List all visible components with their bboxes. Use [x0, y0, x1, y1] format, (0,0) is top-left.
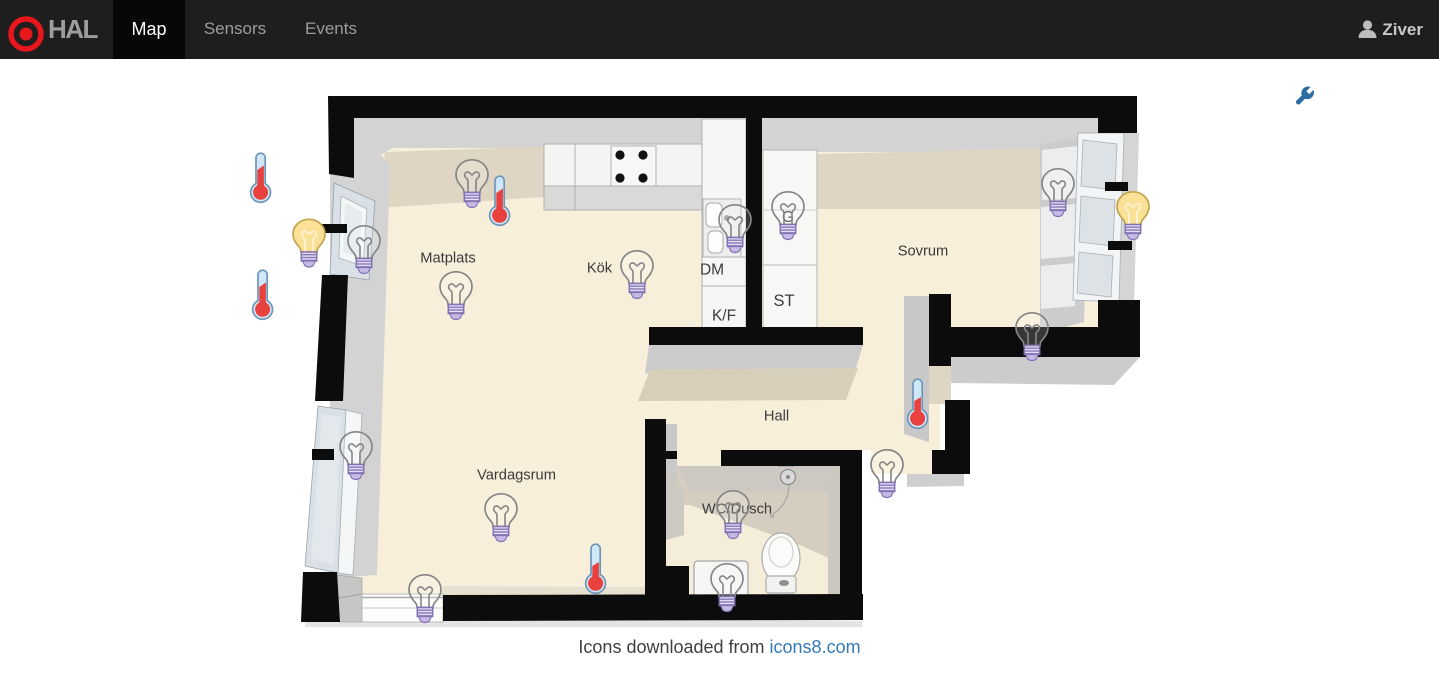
svg-text:Hall: Hall	[764, 409, 789, 425]
svg-text:Kök: Kök	[587, 261, 613, 277]
svg-text:ST: ST	[773, 292, 794, 310]
svg-text:DM: DM	[700, 262, 724, 279]
svg-text:K/F: K/F	[712, 308, 736, 325]
svg-text:Vardagsrum: Vardagsrum	[477, 468, 556, 484]
svg-text:Sovrum: Sovrum	[898, 244, 949, 260]
svg-text:Matplats: Matplats	[420, 251, 476, 267]
